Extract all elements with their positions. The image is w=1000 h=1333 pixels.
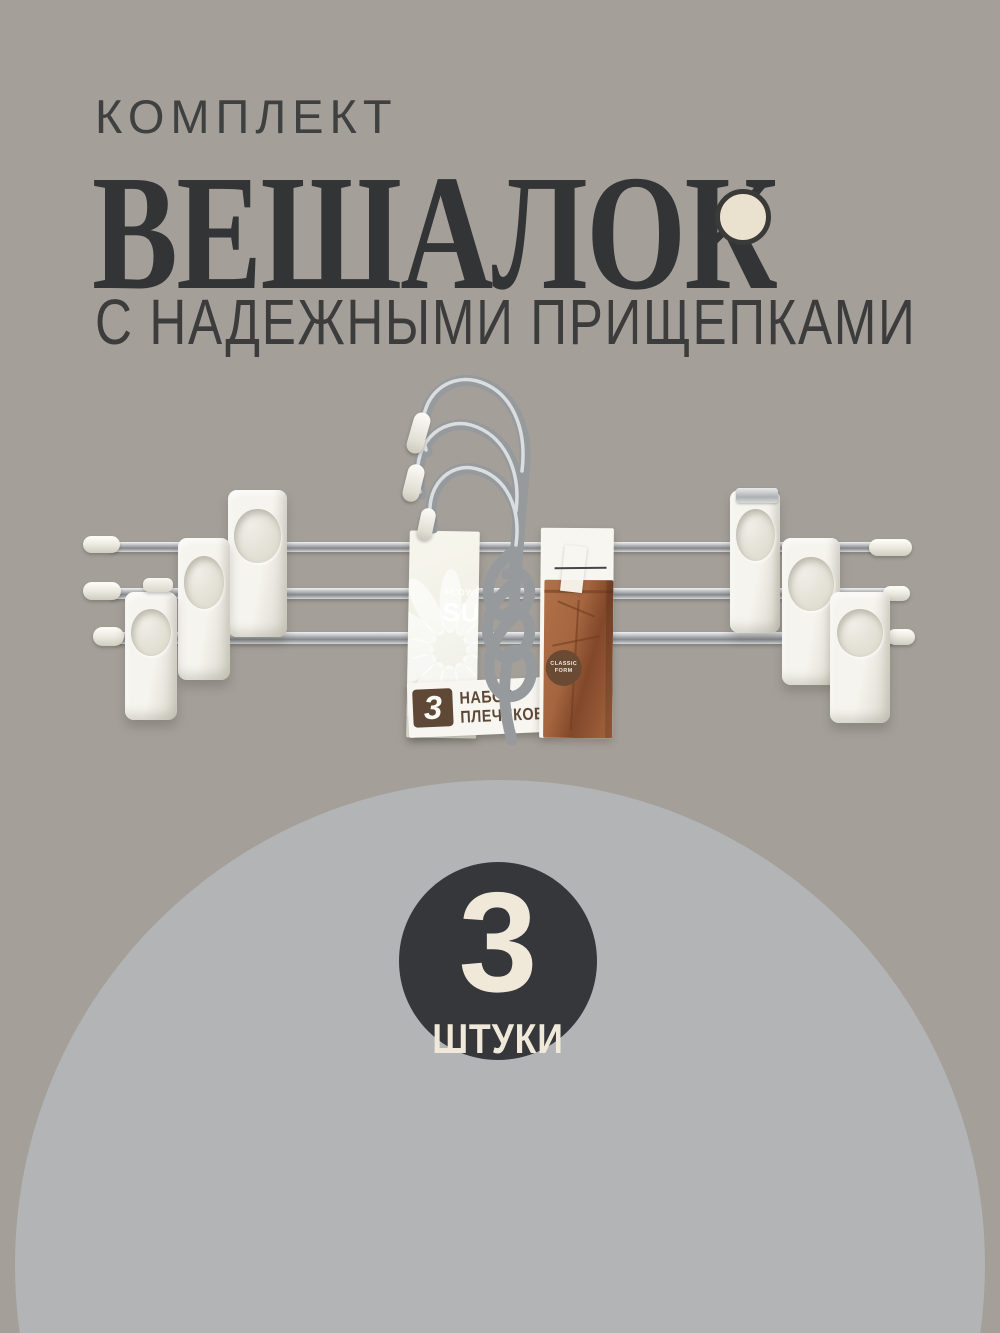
brand-name-small: FLOWER [445, 587, 480, 598]
bar-end-cap [93, 627, 124, 646]
count-number: 3 [423, 689, 443, 727]
set-caption-line2: ПЛЕЧИКОВ [460, 704, 545, 727]
label-info-band: 3 НАБОР ПЛЕЧИКОВ [407, 676, 561, 738]
bar-end-cap [869, 539, 912, 556]
hanger-bar-1 [108, 542, 884, 552]
count-box: 3 [412, 688, 454, 728]
subtitle-text: С НАДЕЖНЫМИ ПРИЩЕПКАМИ [95, 290, 916, 354]
pants-photo [543, 580, 613, 739]
classic-line2: FORM [546, 668, 582, 675]
trouser-clip [228, 490, 287, 637]
sunflower-icon [406, 558, 480, 739]
product-banner: КОМПЛЕКТ ВЕШАЛОК С НАДЕЖНЫМИ ПРИЩЕПКАМИ [0, 0, 1000, 1333]
trouser-clip [125, 592, 177, 720]
hanger-bar-3 [112, 632, 896, 644]
hook-tip-cap [401, 463, 427, 504]
trouser-clip [782, 538, 840, 685]
kicker-text: КОМПЛЕКТ [95, 93, 398, 140]
bar-end-cap [883, 586, 910, 601]
clip-thumb-recess [184, 556, 225, 609]
bar-end-cap [887, 629, 915, 645]
clip-metal-lever [736, 488, 778, 503]
tape-sticker [560, 545, 587, 593]
bar-end-cap [83, 536, 120, 553]
trouser-clip [730, 490, 780, 633]
classic-form-stamp: CLASSIC FORM [546, 650, 582, 686]
pin-line [555, 567, 607, 569]
clip-thumb-recess [837, 609, 884, 657]
clip-thumb-recess [788, 557, 833, 611]
badge-label: ШТУКИ [414, 1018, 582, 1060]
set-caption-line1: НАБОР [459, 685, 544, 708]
set-caption: НАБОР ПЛЕЧИКОВ [459, 685, 545, 727]
clip-thumb-recess [736, 509, 775, 562]
clip-thumb-recess [234, 509, 280, 563]
clip-thumb-recess [131, 609, 172, 656]
badge-number: 3 [399, 872, 597, 1014]
bar-end-cap [83, 582, 121, 600]
brand-card: FLOWER SUN [406, 530, 480, 738]
quantity-badge: 3 ШТУКИ [399, 862, 597, 1060]
clip-lever [143, 578, 173, 592]
hook-tip-cap [416, 507, 437, 541]
trouser-clip [830, 592, 890, 723]
accent-dot-icon [715, 189, 771, 245]
hook-tip-cap [405, 410, 433, 455]
classic-line1: CLASSIC [546, 661, 582, 668]
pants-card: CLASSIC FORM [539, 528, 614, 739]
brand-name: SUN [442, 597, 480, 629]
trouser-clip [178, 538, 230, 680]
hanger-bar-2 [108, 588, 892, 599]
